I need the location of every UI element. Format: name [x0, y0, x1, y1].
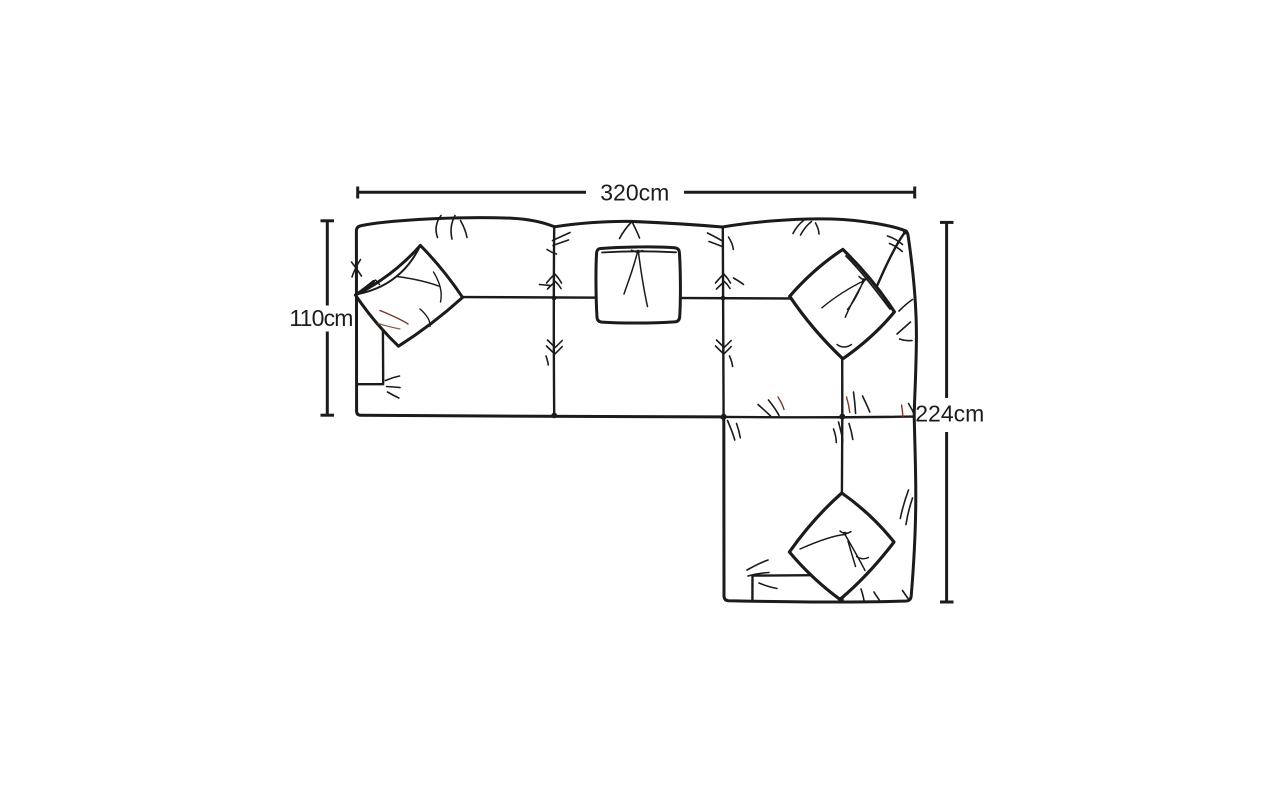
svg-text:224cm: 224cm — [915, 400, 984, 426]
svg-text:320cm: 320cm — [600, 180, 669, 206]
svg-text:110cm: 110cm — [289, 305, 352, 331]
